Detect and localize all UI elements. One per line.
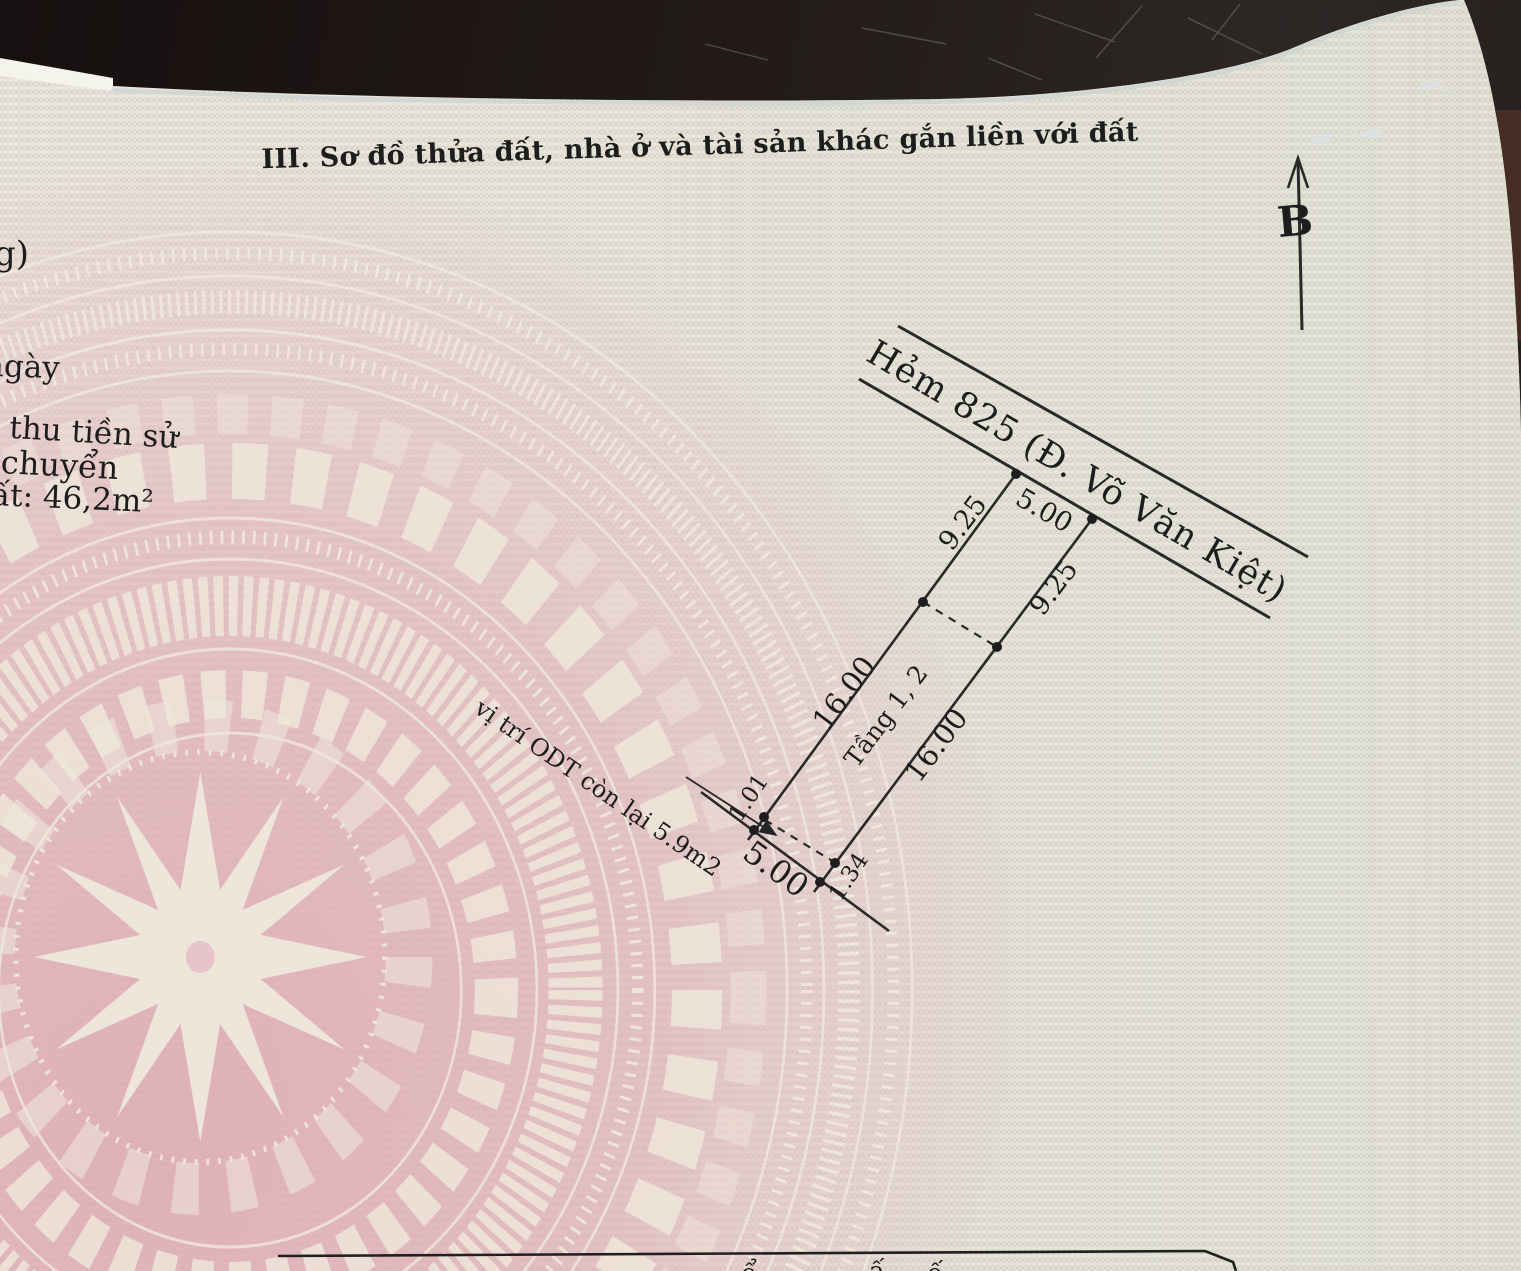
- north-label: B: [1275, 195, 1315, 247]
- left-fragment-area: ất: 46,2m²: [0, 477, 154, 520]
- certificate-page-svg: [0, 0, 1521, 1271]
- paper: [0, 0, 1521, 1271]
- photo-of-land-certificate: III. Sơ đồ thửa đất, nhà ở và tài sản kh…: [0, 0, 1521, 1271]
- left-fragment-g: g): [0, 234, 29, 274]
- left-fragment-ngay: ngày: [0, 348, 60, 387]
- bottom-glyph-tip-2: ấ: [869, 1257, 885, 1271]
- bottom-glyph-tip-1: ể: [741, 1259, 757, 1271]
- background-scratches: [705, 4, 1262, 80]
- bottom-glyph-tip-3: ế: [927, 1259, 943, 1271]
